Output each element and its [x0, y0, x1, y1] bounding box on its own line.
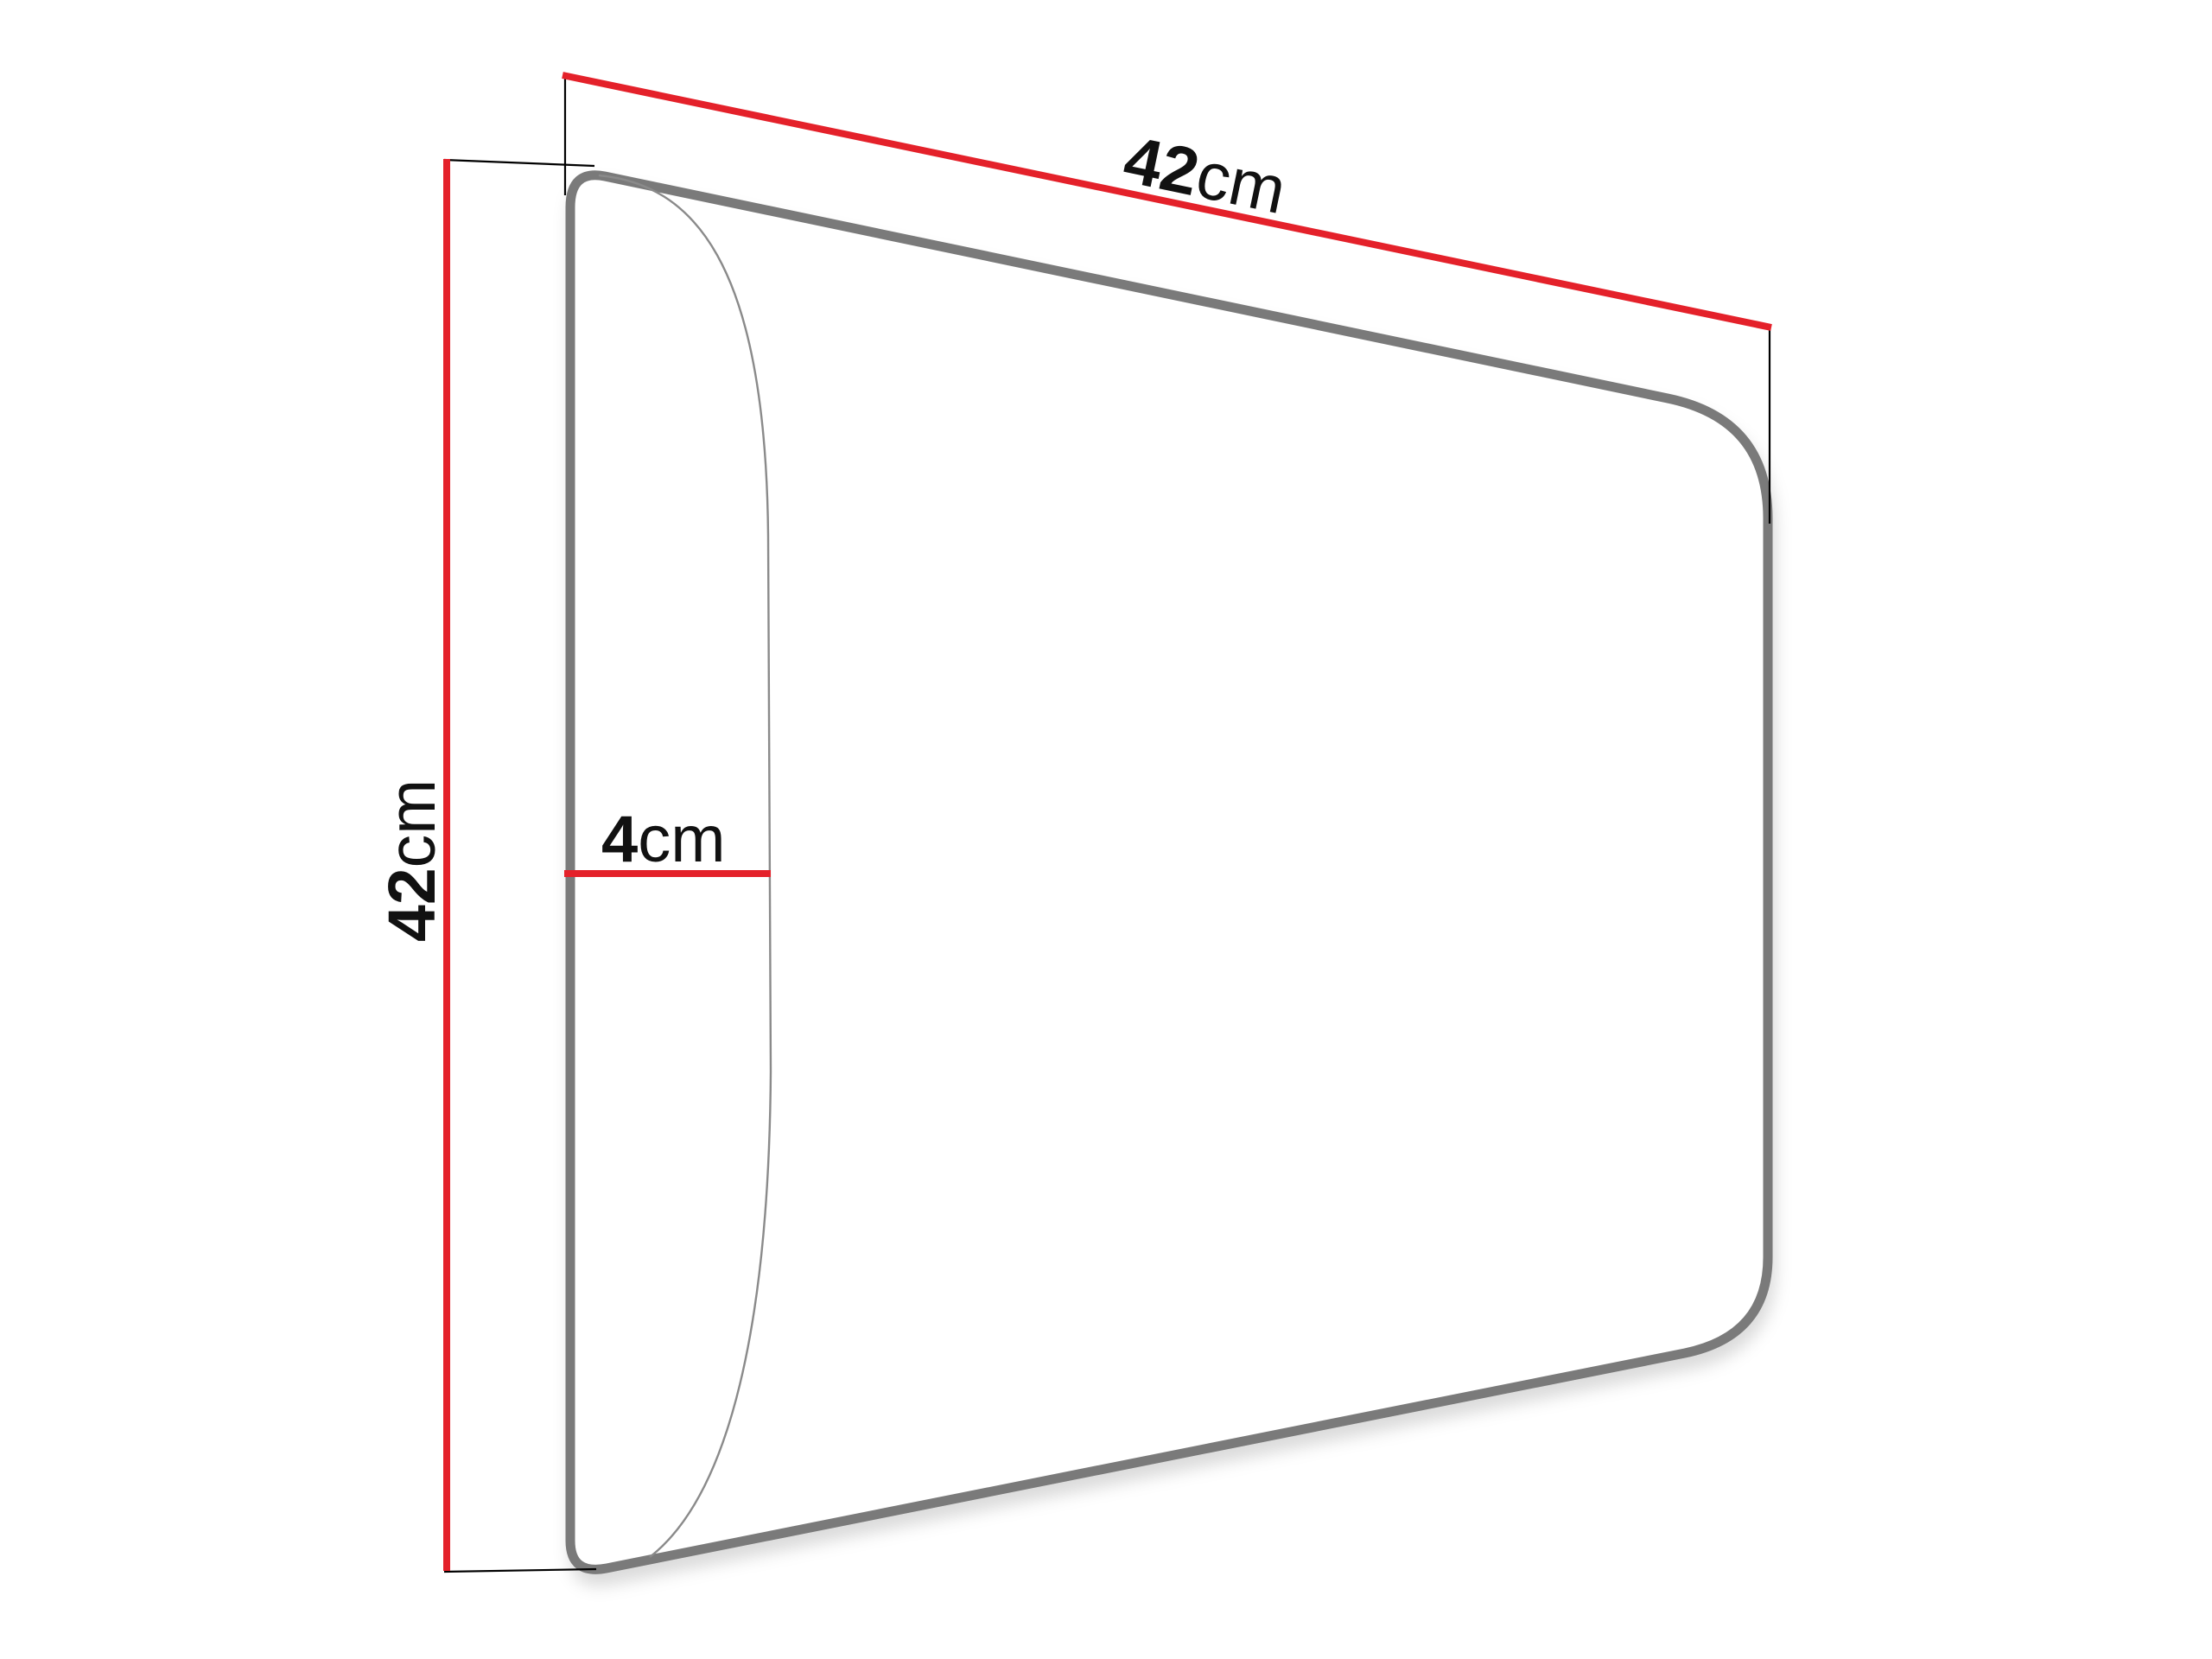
- svg-text:4cm: 4cm: [601, 803, 726, 876]
- svg-text:42cm: 42cm: [375, 779, 449, 942]
- svg-text:42cm: 42cm: [1118, 122, 1293, 228]
